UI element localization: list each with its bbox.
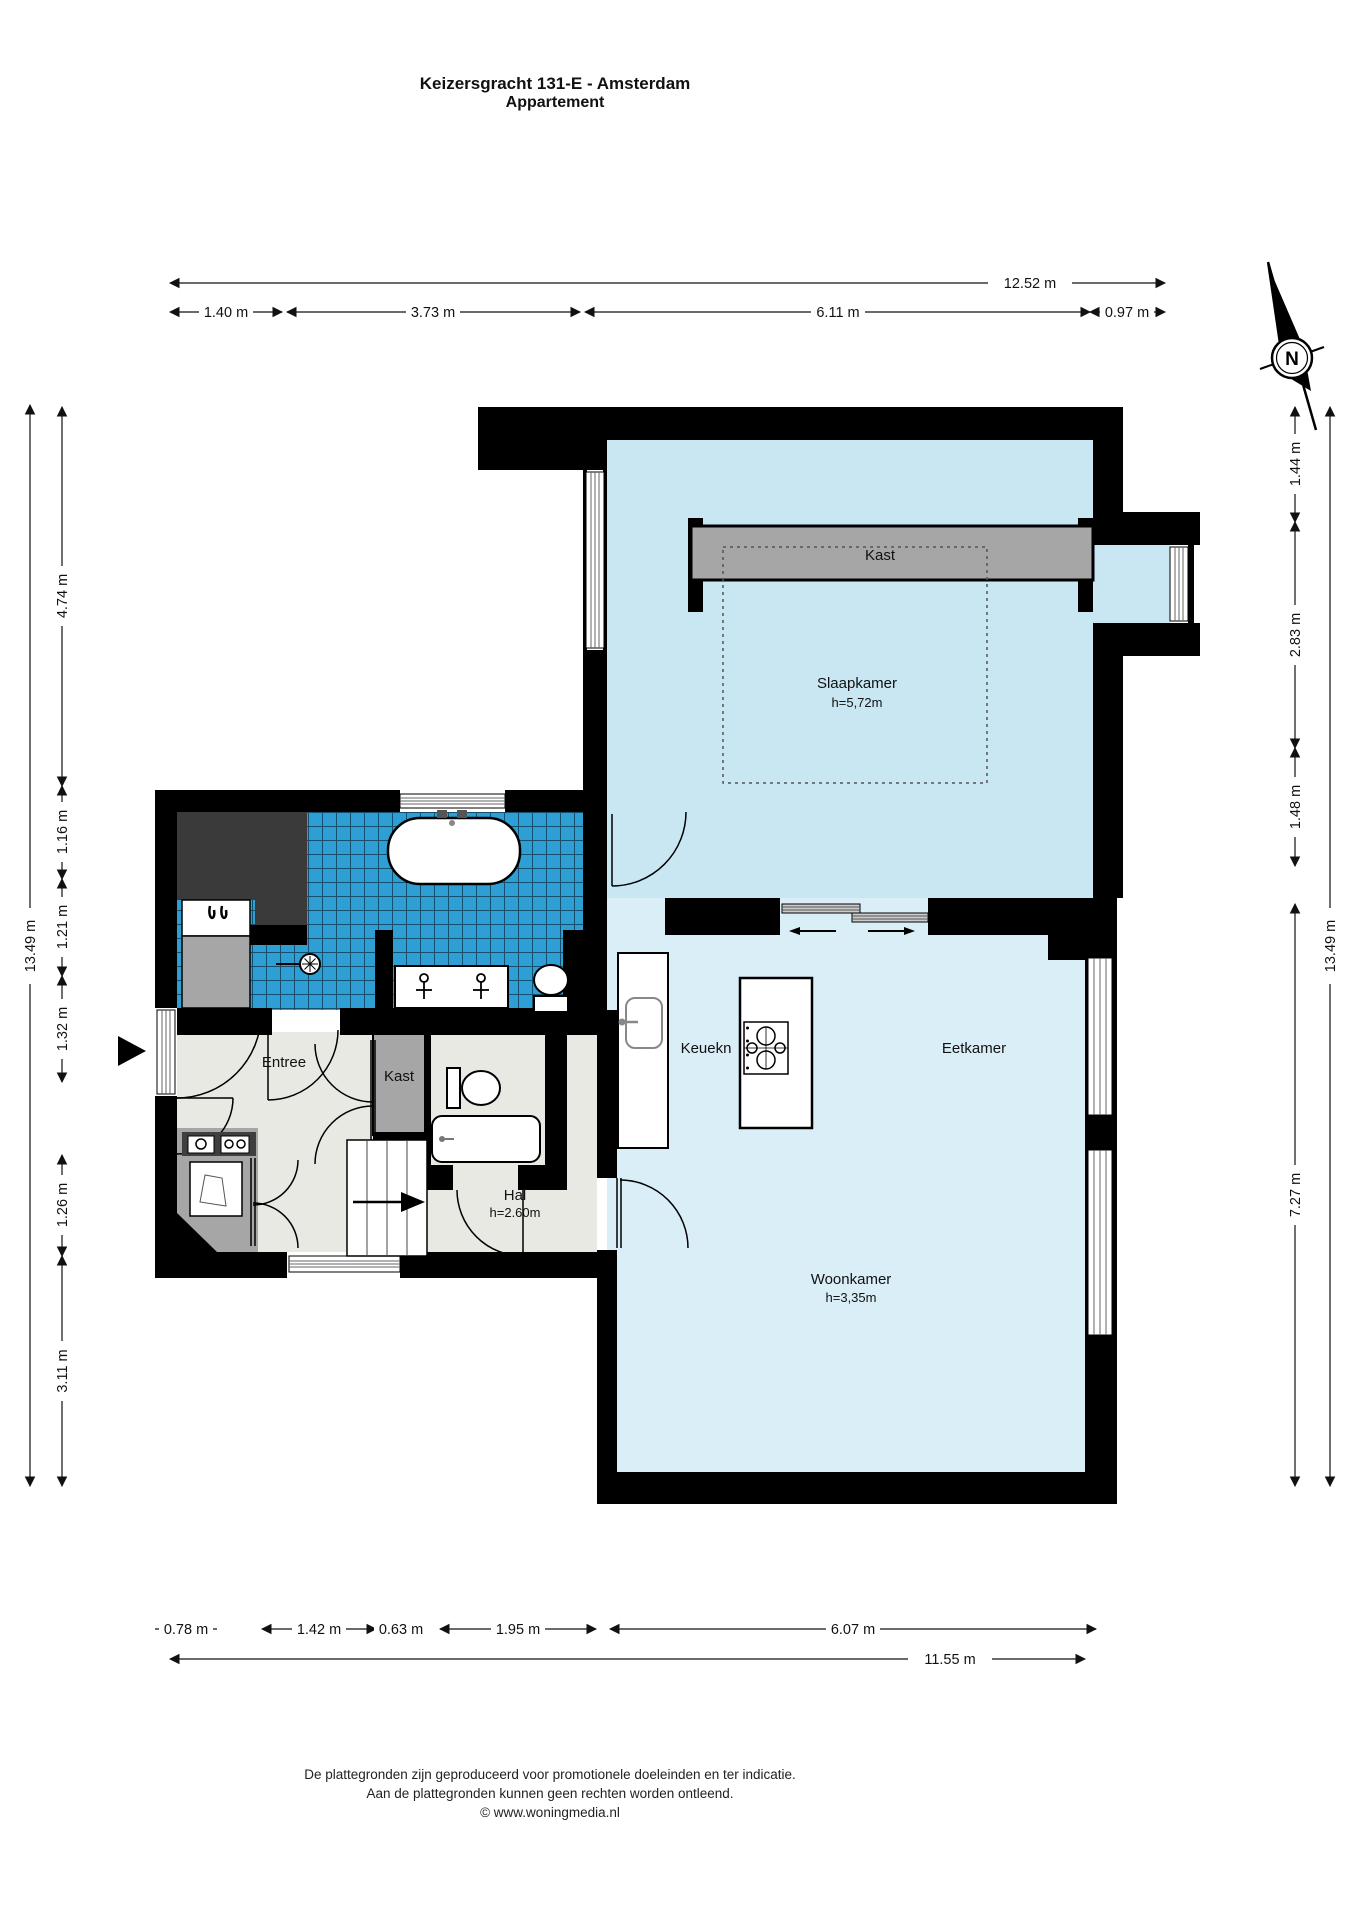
dim-bottom-seg0: 0.78 m [164,1622,208,1638]
dim-top-seg0: 1.40 m [204,305,248,321]
dim-top-total: 12.52 m [1004,276,1056,292]
floorplan-svg: Slaapkamer h=5,72m Kast Entree Kast Hal … [0,0,1358,1920]
window-hal-bottom [289,1256,400,1272]
footer-line3: © www.woningmedia.nl [0,1804,1100,1823]
dim-bottom-seg2: 0.63 m [379,1622,423,1638]
stairs [347,1140,427,1256]
shower-tray-small-bathroom [432,1116,540,1162]
dim-right-seg2: 1.48 m [1288,785,1304,829]
plan-title: Keizersgracht 131-E - Amsterdam Appartem… [0,74,1110,112]
footer-line1: De plattegronden zijn geproduceerd voor … [0,1766,1100,1785]
dim-top-seg3: 0.97 m [1105,305,1149,321]
dim-top-seg1: 3.73 m [411,305,455,321]
bathtub [388,810,520,884]
washing-machine-icon [188,1136,214,1153]
label-kast-hal: Kast [384,1068,415,1085]
window-woonkamer-right-1 [1088,958,1112,1115]
dim-top-seg2: 6.11 m [816,305,859,321]
label-slaapkamer-height: h=5,72m [832,695,883,710]
label-eetkamer: Eetkamer [942,1040,1006,1057]
label-slaapkamer: Slaapkamer [817,675,897,692]
dryer-icon [221,1136,249,1153]
dim-left-total: 13.49 m [23,920,39,972]
plan-title-line2: Appartement [0,94,1110,112]
dim-right-total: 13.49 m [1323,920,1339,972]
label-keuken: Keuekn [681,1040,732,1057]
dim-right-seg1: 2.83 m [1288,613,1304,657]
double-sink-vanity [395,966,508,1008]
bathroom-dark-area-ext [255,900,307,925]
compass-rose: N [1260,262,1324,430]
dim-left-seg4: 1.26 m [55,1183,71,1227]
label-entree: Entree [262,1054,306,1071]
compass-north-label: N [1285,349,1299,370]
kitchen-counter [618,953,668,1148]
label-woonkamer: Woonkamer [811,1271,892,1288]
dim-left-seg0: 4.74 m [55,574,71,618]
dim-left-seg1: 1.16 m [55,810,71,854]
dim-left-seg5: 3.11 m [55,1349,71,1392]
room-floors [177,440,1170,1472]
window-woonkamer-right-2 [1088,1150,1112,1335]
toilet-small-bathroom [447,1068,500,1108]
toilet-bathroom [534,965,568,1012]
dim-bottom-seg1: 1.42 m [297,1622,341,1638]
window-slaapkamer-left [586,472,604,648]
window-bathroom-interior [400,794,505,808]
woonkamer-floor [607,898,1085,1472]
footer-line2: Aan de plattegronden kunnen geen rechten… [0,1785,1100,1804]
dim-left-seg2: 1.21 m [55,905,71,949]
dim-left-seg3: 1.32 m [55,1007,71,1051]
dim-bottom-seg3: 1.95 m [496,1622,540,1638]
dim-right-seg3: 7.27 m [1288,1173,1304,1217]
window-slaapkamer-right [1170,547,1188,621]
plan-footer: De plattegronden zijn geproduceerd voor … [0,1766,1100,1823]
gas-hob-icon [744,1022,788,1074]
plan-title-line1: Keizersgracht 131-E - Amsterdam [0,74,1110,94]
entrance-arrow-icon [118,1036,146,1066]
wardrobe-niche [182,900,250,1008]
window-entree-sidelight [157,1010,175,1094]
label-hal-height: h=2.60m [490,1205,541,1220]
bathroom-dark-area [177,812,307,900]
label-kast-slaapkamer: Kast [865,547,896,564]
kitchen-island [740,978,812,1128]
dim-right-seg0: 1.44 m [1288,442,1304,486]
washer-plan-box [190,1162,242,1216]
dim-bottom-total: 11.55 m [924,1652,975,1668]
label-hal: Hal [504,1187,527,1204]
dim-bottom-seg4: 6.07 m [831,1622,875,1638]
label-woonkamer-height: h=3,35m [826,1290,877,1305]
slaapkamer-floor [607,440,1170,898]
